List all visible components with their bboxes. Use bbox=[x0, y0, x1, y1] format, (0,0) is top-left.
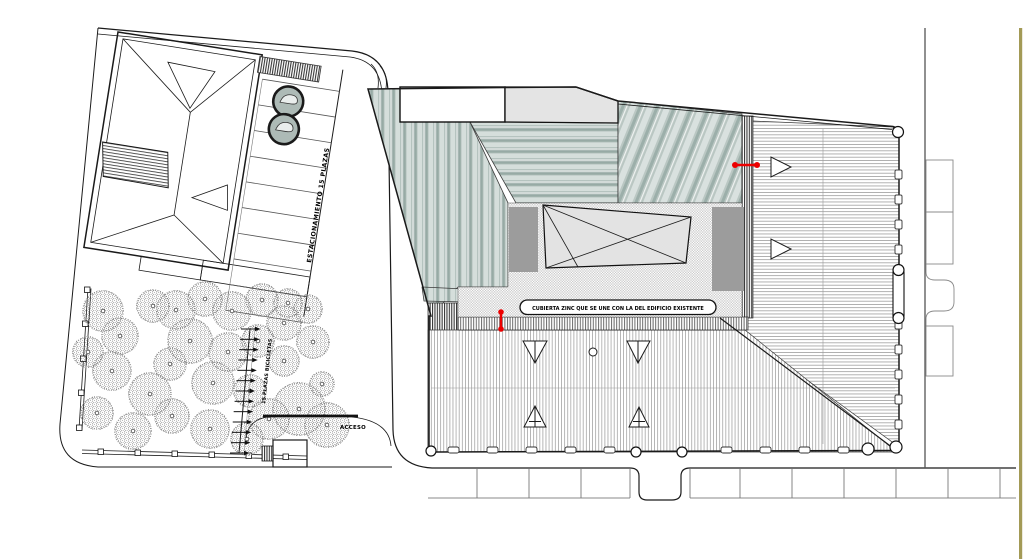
facade-square bbox=[604, 447, 615, 453]
parked-car-circle bbox=[267, 112, 301, 146]
tree-trunk bbox=[188, 339, 192, 343]
facade-tab bbox=[895, 395, 902, 404]
parking-stall-line bbox=[238, 233, 315, 245]
tree-trunk bbox=[320, 382, 324, 386]
facade-tab bbox=[895, 195, 902, 204]
kiosk bbox=[273, 440, 307, 467]
tree-trunk bbox=[203, 297, 207, 301]
parking-stall-line bbox=[246, 182, 323, 194]
roof-plateau-grey bbox=[505, 87, 618, 123]
tree-trunk bbox=[286, 301, 290, 305]
zinc-roof-note: CUBIERTA ZINC QUE SE UNE CON LA DEL EDIF… bbox=[520, 300, 716, 315]
facade-square bbox=[487, 447, 498, 453]
facade-tab bbox=[895, 345, 902, 354]
tree-trunk bbox=[118, 334, 122, 338]
parking-stall-edge bbox=[226, 79, 263, 310]
tree-trunk bbox=[282, 321, 286, 325]
tree-trunk bbox=[131, 429, 135, 433]
tree bbox=[92, 351, 132, 391]
tree bbox=[296, 325, 330, 359]
facade-square bbox=[760, 447, 771, 453]
curb-notch bbox=[926, 264, 954, 326]
stair-hatch bbox=[97, 142, 174, 188]
tree-trunk bbox=[306, 307, 310, 311]
tree bbox=[80, 396, 114, 430]
ramp-hatch bbox=[257, 57, 321, 83]
facade-tab bbox=[895, 170, 902, 179]
tree-trunk bbox=[110, 369, 114, 373]
zinc-roof-note-text: CUBIERTA ZINC QUE SE UNE CON LA DEL EDIF… bbox=[532, 306, 704, 312]
tree-trunk bbox=[101, 309, 105, 313]
facade-square bbox=[799, 447, 810, 453]
right-neighbor-parking bbox=[926, 160, 954, 376]
tree-trunk bbox=[174, 308, 178, 312]
tree bbox=[154, 398, 190, 434]
parking-bay bbox=[926, 160, 953, 212]
tree-trunk bbox=[170, 414, 174, 418]
parking-stall-line bbox=[242, 208, 319, 220]
facade-square bbox=[448, 447, 459, 453]
parking-stall-line bbox=[250, 156, 327, 168]
facade-tab bbox=[895, 370, 902, 379]
page-edge-strip bbox=[1019, 28, 1022, 559]
parking-stall-line bbox=[234, 259, 311, 271]
tree bbox=[191, 361, 235, 405]
zinc-roof-diagonal-bands bbox=[618, 101, 742, 203]
access-curve-right bbox=[352, 417, 391, 446]
left-parcel: ESTACIONAMIENTO 15 PLAZAS 15 PLAZAS BICI… bbox=[72, 32, 391, 467]
parking-label: ESTACIONAMIENTO 15 PLAZAS bbox=[306, 147, 331, 263]
porch bbox=[139, 256, 202, 280]
tree-trunk bbox=[297, 407, 301, 411]
kiosk-step bbox=[262, 446, 273, 461]
tree bbox=[114, 412, 152, 450]
tree bbox=[268, 345, 300, 377]
roof-vent-triangle-top bbox=[161, 62, 215, 111]
facade-square bbox=[526, 447, 537, 453]
facade-square bbox=[565, 447, 576, 453]
tree-trunk bbox=[282, 359, 286, 363]
facade-tab bbox=[895, 420, 902, 429]
parking-bay bbox=[926, 326, 953, 376]
tree bbox=[101, 317, 139, 355]
tree-trunk bbox=[226, 350, 230, 354]
tree-trunk bbox=[325, 423, 329, 427]
courtyard-block-west bbox=[509, 207, 538, 272]
facade-square bbox=[838, 447, 849, 453]
site-plan-drawing: ESTACIONAMIENTO 15 PLAZAS 15 PLAZAS BICI… bbox=[0, 0, 1024, 559]
street-curb-inner bbox=[98, 34, 382, 134]
bottom-parking-dividers bbox=[477, 469, 1000, 498]
tree-trunk bbox=[260, 298, 264, 302]
flue-arcs bbox=[371, 64, 386, 88]
tree-trunk bbox=[168, 362, 172, 366]
parking-stall-line bbox=[262, 79, 339, 91]
skylight-white bbox=[400, 87, 505, 122]
tree-trunk bbox=[230, 309, 234, 313]
existing-building bbox=[78, 32, 344, 322]
tree-trunk bbox=[148, 392, 152, 396]
parking-bay bbox=[926, 212, 953, 264]
tree-trunk bbox=[151, 304, 155, 308]
facade-tab bbox=[895, 245, 902, 254]
bike-rack-tick-arrow bbox=[252, 358, 258, 362]
new-building: CUBIERTA ZINC QUE SE UNE CON LA DEL EDIF… bbox=[368, 64, 904, 457]
courtyard-block-east bbox=[712, 207, 744, 291]
bike-rack-tick-arrow bbox=[251, 368, 257, 372]
facade-square bbox=[721, 447, 732, 453]
tree-trunk bbox=[208, 427, 212, 431]
facade-tab bbox=[895, 220, 902, 229]
tree-trunk bbox=[86, 350, 90, 354]
tree-trunk bbox=[267, 417, 271, 421]
access-label: ACCESO bbox=[340, 425, 366, 431]
tree-trunk bbox=[211, 381, 215, 385]
tree-trunk bbox=[311, 340, 315, 344]
tree-trunk bbox=[95, 411, 99, 415]
tree bbox=[190, 409, 230, 449]
site-plan: ESTACIONAMIENTO 15 PLAZAS 15 PLAZAS BICI… bbox=[0, 0, 1024, 559]
garden-trees bbox=[72, 281, 350, 456]
roof-vent-triangle-side bbox=[191, 180, 231, 210]
